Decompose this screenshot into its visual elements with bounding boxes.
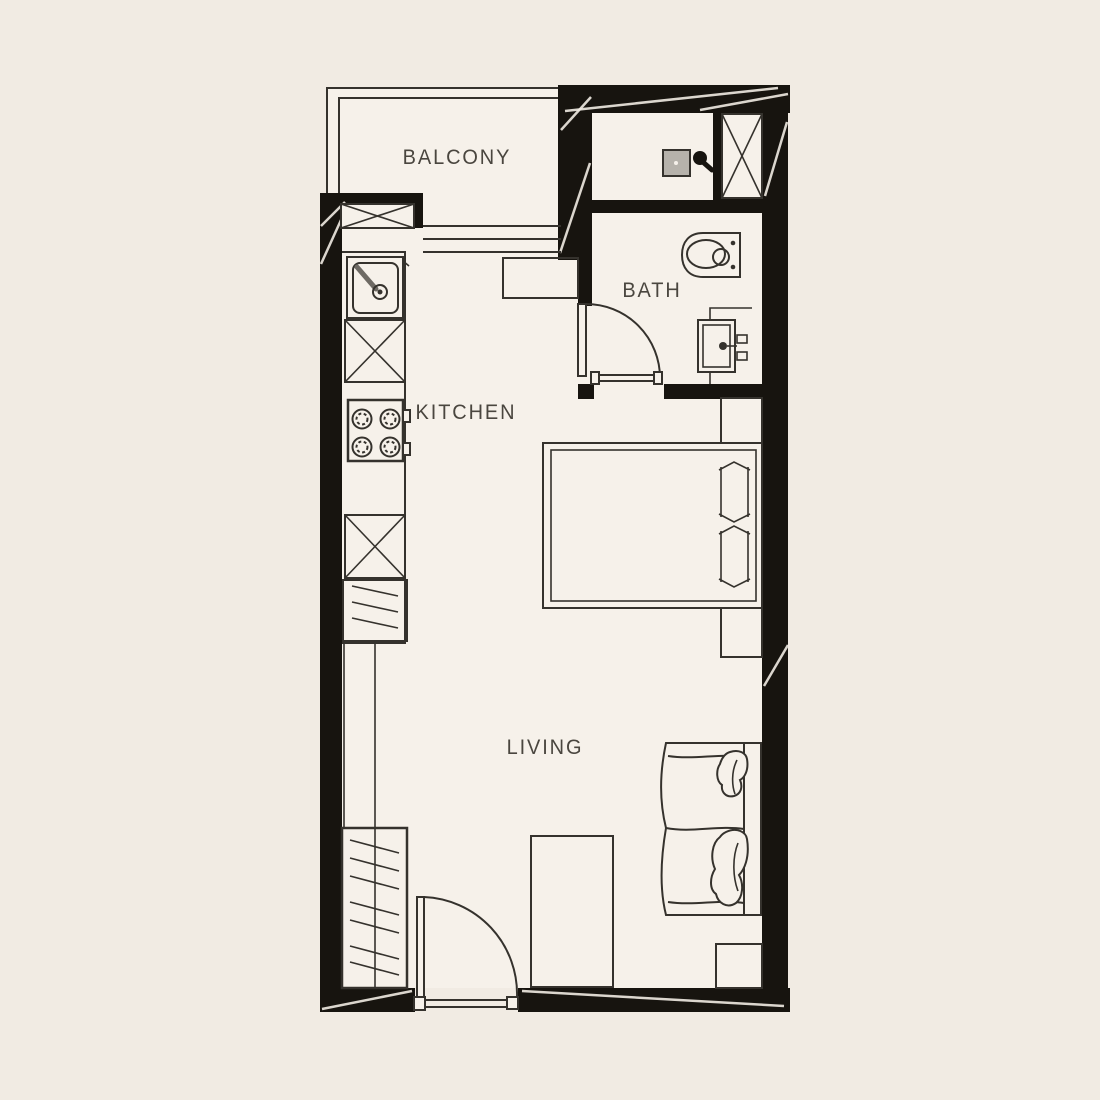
sofa <box>661 743 761 915</box>
room-label-living: LIVING <box>507 736 584 760</box>
wall-vent-x <box>341 204 414 228</box>
room-label-balcony: BALCONY <box>403 146 512 170</box>
room-label-kitchen: KITCHEN <box>416 401 517 425</box>
service-shaft-x <box>722 114 762 198</box>
floor-plan-canvas: BALCONY BATH KITCHEN LIVING <box>0 0 1100 1100</box>
floor-plan-drawing <box>0 0 1100 1100</box>
throw-pillow <box>711 830 748 905</box>
room-label-bath: BATH <box>622 279 681 303</box>
